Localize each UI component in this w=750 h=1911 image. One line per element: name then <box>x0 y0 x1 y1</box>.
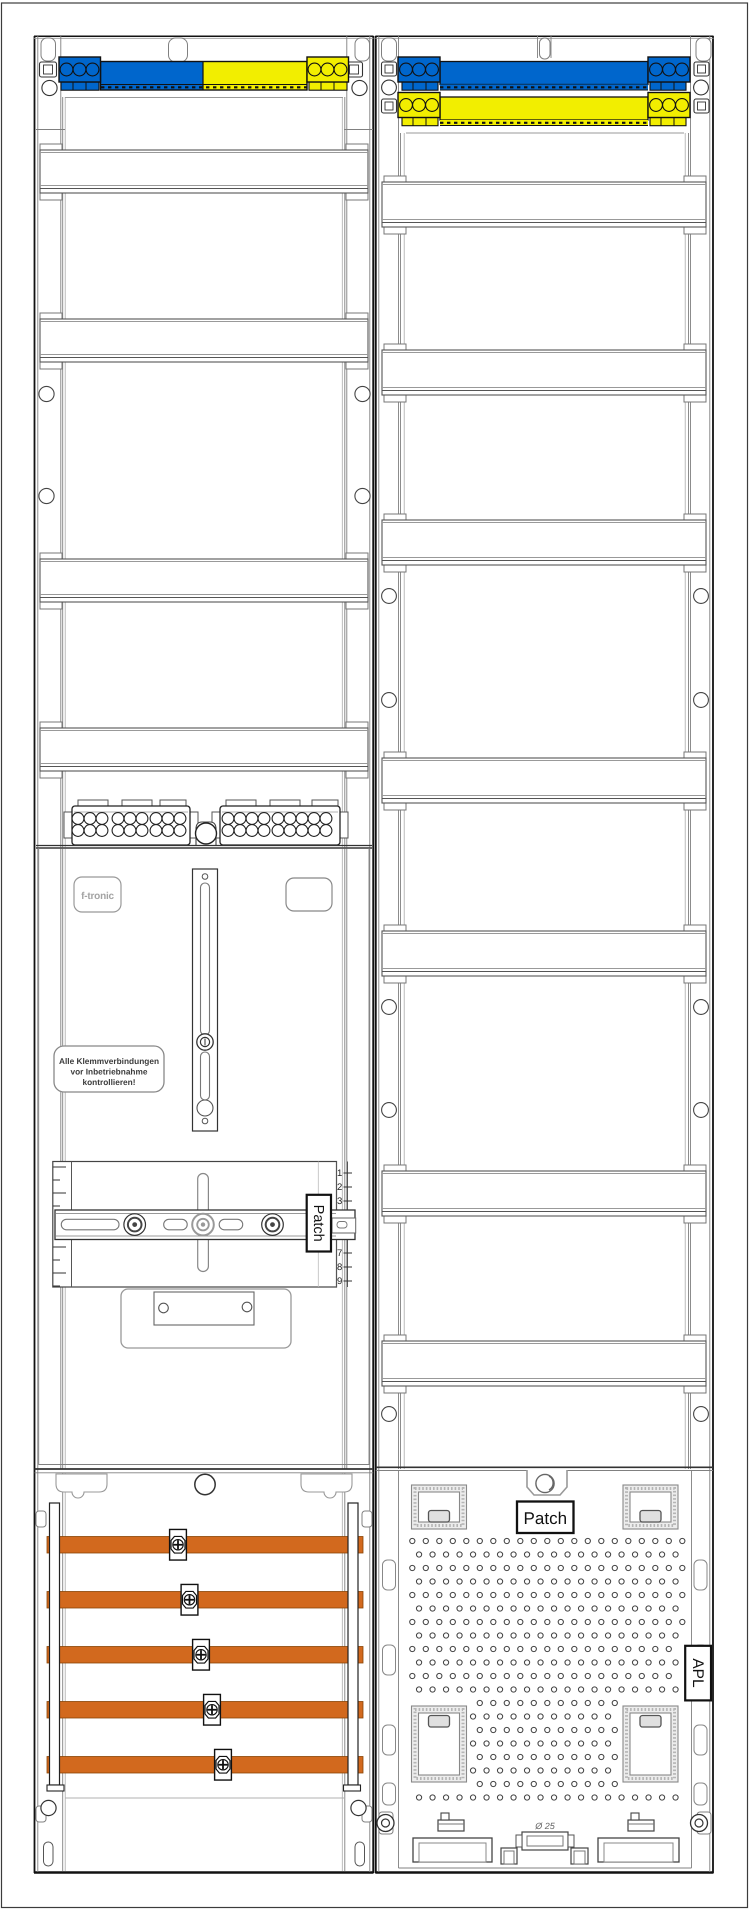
svg-text:9: 9 <box>337 1276 342 1287</box>
svg-text:Patch: Patch <box>524 1509 567 1528</box>
svg-text:vor Inbetriebnahme: vor Inbetriebnahme <box>71 1067 148 1077</box>
svg-text:Patch: Patch <box>310 1205 326 1242</box>
svg-text:1: 1 <box>337 1168 342 1179</box>
svg-text:Alle Klemmverbindungen: Alle Klemmverbindungen <box>59 1056 159 1066</box>
svg-text:f-tronic: f-tronic <box>81 891 114 902</box>
svg-text:APL: APL <box>689 1658 706 1688</box>
svg-text:kontrollieren!: kontrollieren! <box>82 1077 135 1087</box>
svg-text:7: 7 <box>337 1248 342 1259</box>
svg-text:2: 2 <box>337 1182 342 1193</box>
svg-text:Ø 25: Ø 25 <box>534 1821 556 1831</box>
svg-text:3: 3 <box>337 1196 342 1207</box>
svg-text:8: 8 <box>337 1262 342 1273</box>
